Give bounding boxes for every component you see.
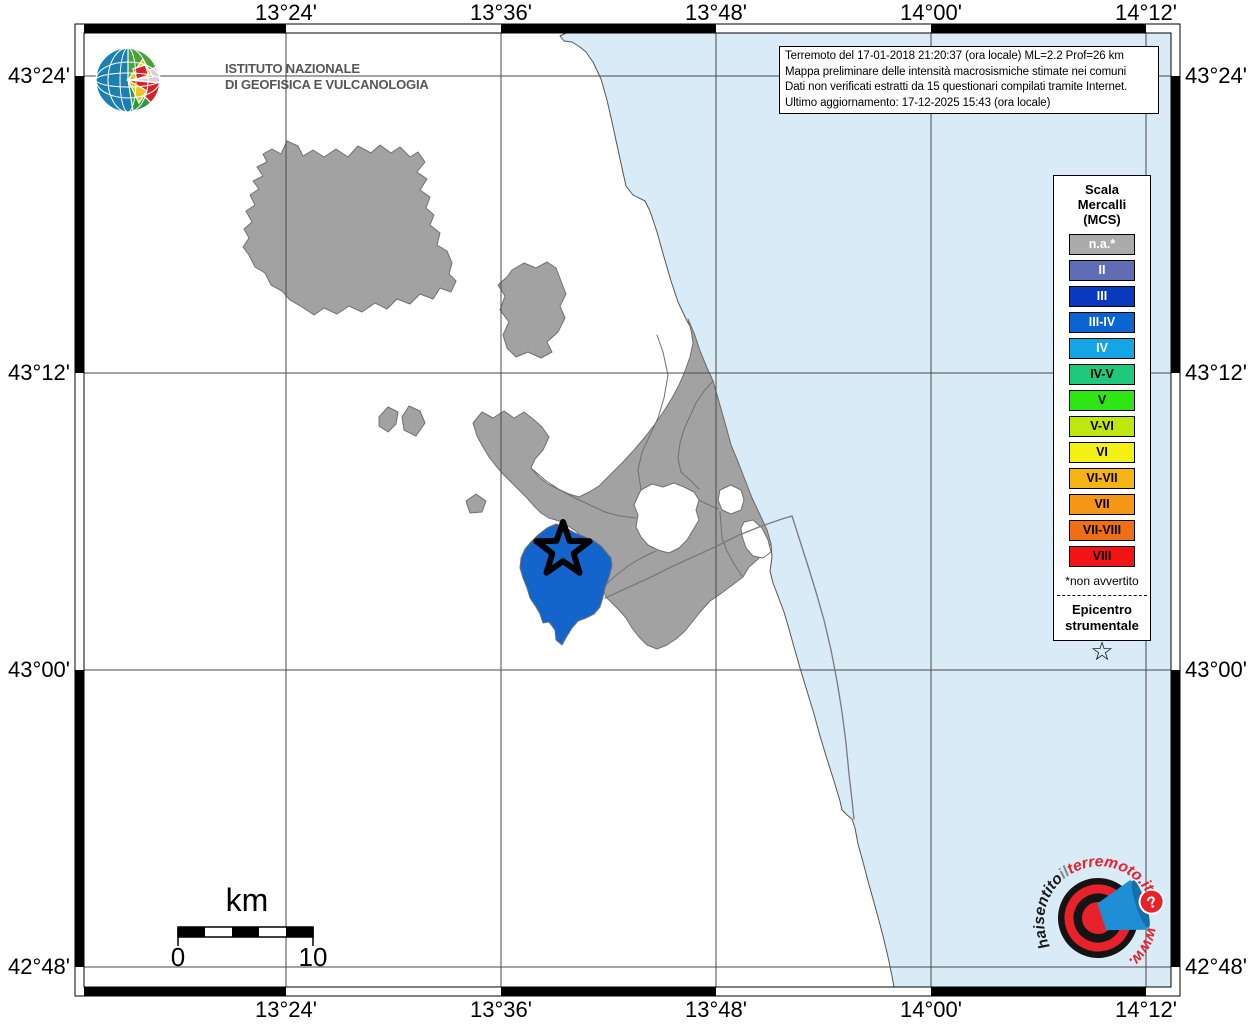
- axis-label-lat: 43°00': [1185, 657, 1247, 683]
- legend-item: III-IV: [1069, 312, 1135, 333]
- frame-segment: [75, 76, 84, 373]
- legend-item: n.a.*: [1069, 234, 1135, 255]
- legend-item: II: [1069, 260, 1135, 281]
- legend-epicenter-line: strumentale: [1054, 618, 1150, 634]
- legend-item: VIII: [1069, 546, 1135, 567]
- ingv-name-line: ISTITUTO NAZIONALE: [225, 61, 429, 77]
- info-line-updated: Ultimo aggiornamento: 17-12-2025 15:43 (…: [785, 96, 1153, 112]
- scale-bar-end: 10: [293, 942, 333, 973]
- axis-label-lon: 14°00': [900, 998, 962, 1022]
- legend-item: VII: [1069, 494, 1135, 515]
- epicenter-star-icon: ☆: [1054, 636, 1150, 666]
- frame-segment: [1171, 670, 1180, 967]
- legend-footnote: *non avvertito: [1054, 574, 1150, 588]
- white-enclave-coast-a: [718, 485, 744, 514]
- macroseismic-map-page: 13°24' 13°36' 13°48' 14°00' 14°12' 13°24…: [0, 0, 1255, 1024]
- axis-label-lon: 14°00': [900, 1, 962, 25]
- legend-item: IV-V: [1069, 364, 1135, 385]
- legend-epicenter-label: Epicentro strumentale: [1054, 602, 1150, 634]
- axis-label-lon: 13°36': [470, 998, 532, 1022]
- axis-label-lon: 14°12': [1115, 1, 1177, 25]
- axis-label-lon: 13°24': [255, 1, 317, 25]
- frame-segment: [84, 24, 286, 33]
- ingv-logo-text: ISTITUTO NAZIONALE DI GEOFISICA E VULCAN…: [225, 61, 429, 93]
- frame-segment: [1171, 76, 1180, 373]
- scale-bar-segment: [232, 927, 259, 937]
- axis-label-lat: 43°24': [1185, 63, 1247, 89]
- axis-label-lon: 13°24': [255, 998, 317, 1022]
- axis-label-lat: 43°12': [1185, 360, 1247, 386]
- legend-item: VI: [1069, 442, 1135, 463]
- legend-item: V: [1069, 390, 1135, 411]
- axis-label-lon: 13°48': [685, 1, 747, 25]
- legend-title-line: Scala: [1054, 182, 1150, 197]
- frame-segment: [75, 670, 84, 967]
- intensity-legend: Scala Mercalli (MCS) n.a.*IIIIIIII-IVIVI…: [1053, 175, 1151, 641]
- axis-label-lat: 43°00': [0, 657, 70, 683]
- axis-label-lat: 42°48': [0, 954, 70, 980]
- legend-epicenter-line: Epicentro: [1054, 602, 1150, 618]
- ingv-globe-icon: [95, 47, 161, 113]
- axis-label-lon: 14°12': [1115, 998, 1177, 1022]
- info-line-data-source: Dati non verificati estratti da 15 quest…: [785, 80, 1153, 96]
- legend-title: Scala Mercalli (MCS): [1054, 182, 1150, 227]
- legend-title-line: Mercalli: [1054, 197, 1150, 212]
- axis-label-lon: 13°36': [470, 1, 532, 25]
- legend-item: VI-VII: [1069, 468, 1135, 489]
- legend-item: VII-VIII: [1069, 520, 1135, 541]
- frame-segment: [501, 24, 716, 33]
- legend-items: n.a.*IIIIIIII-IVIVIV-VVV-VIVIVI-VIIVIIVI…: [1054, 234, 1150, 567]
- haisentitoilterremoto-logo: ? haisentitoilterremoto.it www.: [1028, 846, 1168, 993]
- info-line-event: Terremoto del 17-01-2018 21:20:37 (ora l…: [785, 49, 1153, 65]
- ingv-logo: [95, 47, 161, 118]
- legend-item: IV: [1069, 338, 1135, 359]
- legend-divider: [1057, 595, 1147, 596]
- scale-bar-unit: km: [205, 882, 289, 919]
- axis-label-lat: 43°24': [0, 63, 70, 89]
- frame-segment: [84, 987, 286, 996]
- site-logo-graphic: ? haisentitoilterremoto.it www.: [1028, 846, 1168, 988]
- axis-label-lat: 42°48': [1185, 954, 1247, 980]
- scale-bar-segment: [286, 927, 313, 937]
- axis-label-lon: 13°48': [685, 998, 747, 1022]
- axis-label-lat: 43°12': [0, 360, 70, 386]
- info-line-map-type: Mappa preliminare delle intensità macros…: [785, 65, 1153, 81]
- ingv-name-line: DI GEOFISICA E VULCANOLOGIA: [225, 77, 429, 93]
- scale-bar-start: 0: [158, 942, 198, 973]
- frame-segment: [501, 987, 716, 996]
- legend-item: III: [1069, 286, 1135, 307]
- legend-title-line: (MCS): [1054, 212, 1150, 227]
- earthquake-info-box: Terremoto del 17-01-2018 21:20:37 (ora l…: [779, 46, 1159, 114]
- frame-segment: [931, 24, 1146, 33]
- scale-bar-segment: [178, 927, 205, 937]
- legend-item: V-VI: [1069, 416, 1135, 437]
